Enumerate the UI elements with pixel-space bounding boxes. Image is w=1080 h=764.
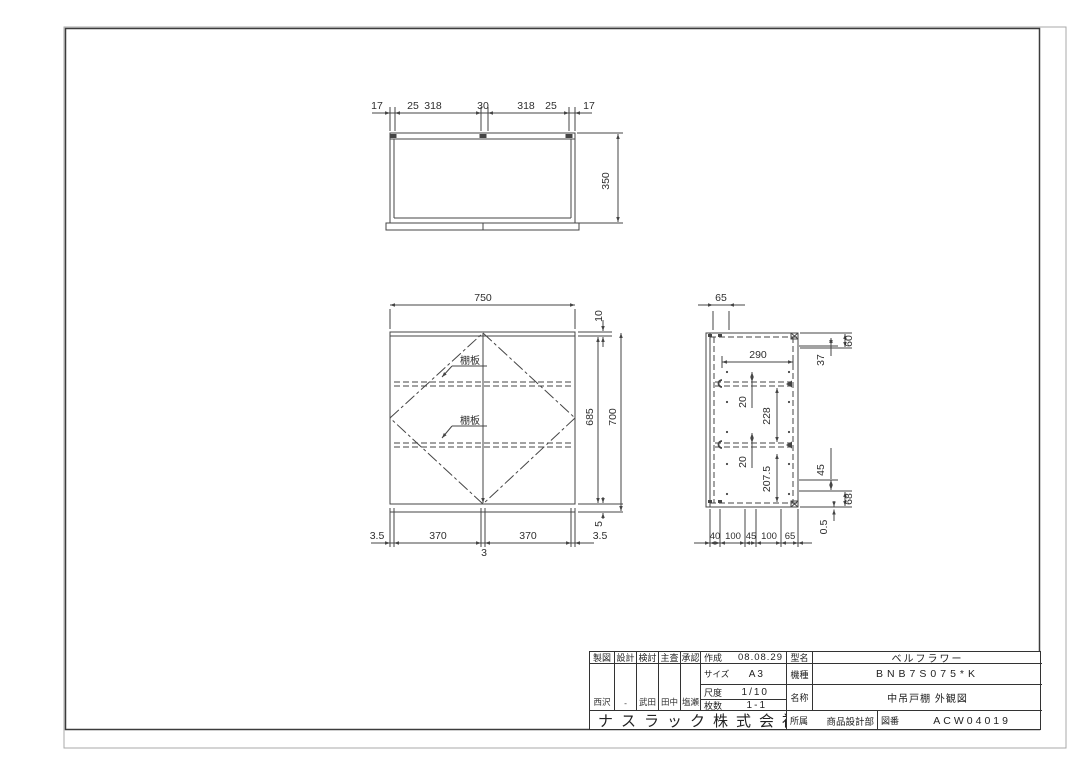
shelf-label: 棚板 xyxy=(460,414,480,427)
dim-label: 0.5 xyxy=(818,520,830,535)
dwg-no-value: ACW04019 xyxy=(933,715,1011,727)
side-view-labels: 65 290 20 20 228 207.5 60 37 45 68 0.5 4… xyxy=(710,292,855,542)
size-label: サイズ xyxy=(704,668,729,680)
dim-label: 25 xyxy=(407,100,419,112)
sheets-row: 枚数 1-1 xyxy=(701,700,787,711)
scale-label: 尺度 xyxy=(704,686,722,699)
dim-label: 5 xyxy=(593,521,605,527)
dim-label: 45 xyxy=(746,531,757,542)
dim-label: 100 xyxy=(761,531,777,542)
name-value: 中吊戸棚 外観図 xyxy=(813,685,1042,711)
drawing-frame xyxy=(66,29,1040,730)
dim-label: 45 xyxy=(815,464,827,476)
dim-label: 290 xyxy=(749,349,767,361)
fitting-mark xyxy=(708,334,712,337)
dim-label: 207.5 xyxy=(761,466,773,492)
dept-value: 商品設計部 xyxy=(826,714,874,728)
shelf-label: 棚板 xyxy=(460,354,480,367)
dim-label: 318 xyxy=(424,100,442,112)
dept-label: 所属 xyxy=(790,714,808,727)
size-row: サイズ A3 xyxy=(701,664,787,685)
dim-label: 700 xyxy=(607,408,619,426)
approval-stamp: 西沢 xyxy=(590,664,615,711)
dim-label: 3.5 xyxy=(593,530,608,542)
shelf-support-hook xyxy=(719,380,723,387)
dim-label: 17 xyxy=(371,100,383,112)
hinge-marks xyxy=(390,134,573,138)
side-view xyxy=(694,305,852,547)
cad-drawing-page: 17 25 318 30 318 25 17 350 xyxy=(0,0,1080,764)
dept-row: 所属 商品設計部 xyxy=(787,711,878,730)
dim-label: 68 xyxy=(843,493,855,505)
shelf-support-hook xyxy=(718,441,722,448)
name-label: 名称 xyxy=(787,685,813,711)
paper-edge xyxy=(64,27,1066,748)
fitting-mark xyxy=(718,500,722,503)
model-value: ベルフラワー xyxy=(813,652,1042,664)
approval-stamp: 武田 xyxy=(637,664,659,711)
approval-stamp: 塩瀬 xyxy=(681,664,701,711)
approval-stamp: - xyxy=(615,664,637,711)
dim-label: 3.5 xyxy=(370,530,385,542)
dim-label: 370 xyxy=(429,530,447,542)
dim-label: 25 xyxy=(545,100,557,112)
dim-label: 350 xyxy=(600,172,612,190)
dim-label: 3 xyxy=(481,547,487,559)
scale-row: 尺度 1/10 xyxy=(701,685,787,700)
dim-label: 37 xyxy=(815,354,827,366)
drawing-sheet: 17 25 318 30 318 25 17 350 xyxy=(0,0,1080,764)
dim-label: 750 xyxy=(474,292,492,304)
scale-value: 1/10 xyxy=(742,687,769,698)
dwg-no-row: 図番 ACW04019 xyxy=(878,711,1042,730)
created-label: 作成 xyxy=(704,652,722,664)
dim-label: 20 xyxy=(737,396,749,408)
dim-label: 318 xyxy=(517,100,535,112)
bolt-marks xyxy=(791,333,798,507)
fitting-mark xyxy=(718,334,722,337)
dim-label: 65 xyxy=(785,531,796,542)
sheets-value: 1-1 xyxy=(747,700,767,711)
company-name: ナスラック株式会社 xyxy=(590,711,787,730)
created-row: 作成 08.08.29 xyxy=(701,652,787,664)
dim-label: 60 xyxy=(843,335,855,347)
approval-header: 承認 xyxy=(681,652,701,664)
approval-stamp: 田中 xyxy=(659,664,681,711)
model-label: 型名 xyxy=(787,652,813,664)
dim-label: 30 xyxy=(477,100,489,112)
title-block: 製図 設計 検討 主査 承認 西沢 - 武田 田中 塩瀬 作成 08.08.29… xyxy=(589,651,1041,730)
machine-label: 機種 xyxy=(787,664,813,685)
machine-value: BNB7S075*K xyxy=(813,664,1042,685)
dim-label: 228 xyxy=(761,407,773,425)
created-date: 08.08.29 xyxy=(738,652,783,663)
dim-label: 685 xyxy=(584,408,596,426)
dim-label: 40 xyxy=(710,531,721,542)
size-value: A3 xyxy=(749,669,765,680)
top-view xyxy=(372,107,623,230)
dim-label: 65 xyxy=(715,292,727,304)
fitting-mark xyxy=(708,500,712,503)
dim-label: 370 xyxy=(519,530,537,542)
dim-label: 100 xyxy=(725,531,741,542)
dim-label: 17 xyxy=(583,100,595,112)
dim-label: 20 xyxy=(737,456,749,468)
approval-header: 検討 xyxy=(637,652,659,664)
dwg-no-label: 図番 xyxy=(881,714,899,727)
sheet-borders xyxy=(64,27,1066,748)
dim-label: 10 xyxy=(593,310,605,322)
approval-header: 製図 xyxy=(590,652,615,664)
approval-header: 主査 xyxy=(659,652,681,664)
sheets-label: 枚数 xyxy=(704,700,722,711)
approval-header: 設計 xyxy=(615,652,637,664)
